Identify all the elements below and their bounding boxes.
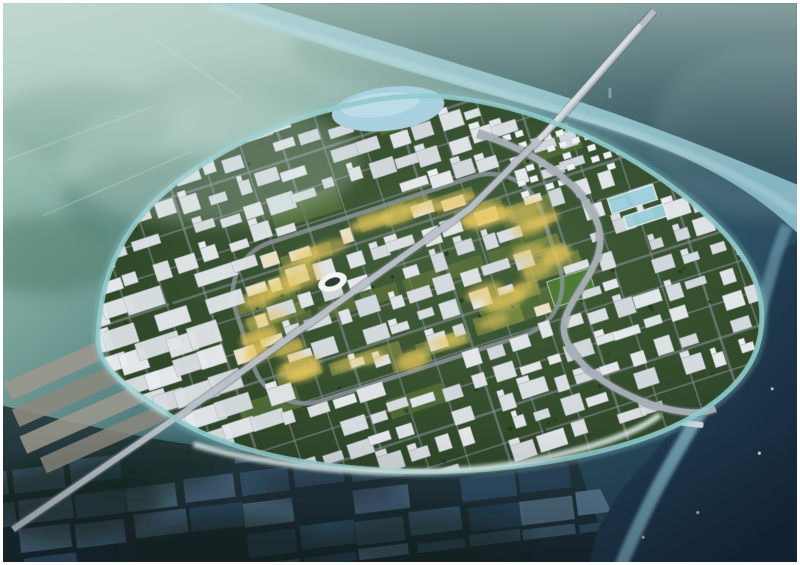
photo-area: [3, 3, 797, 562]
scene-svg: [3, 3, 797, 562]
aerial-render-image: [0, 0, 800, 565]
bottom-vignette: [3, 428, 797, 562]
city-edge-mist: [63, 97, 361, 226]
